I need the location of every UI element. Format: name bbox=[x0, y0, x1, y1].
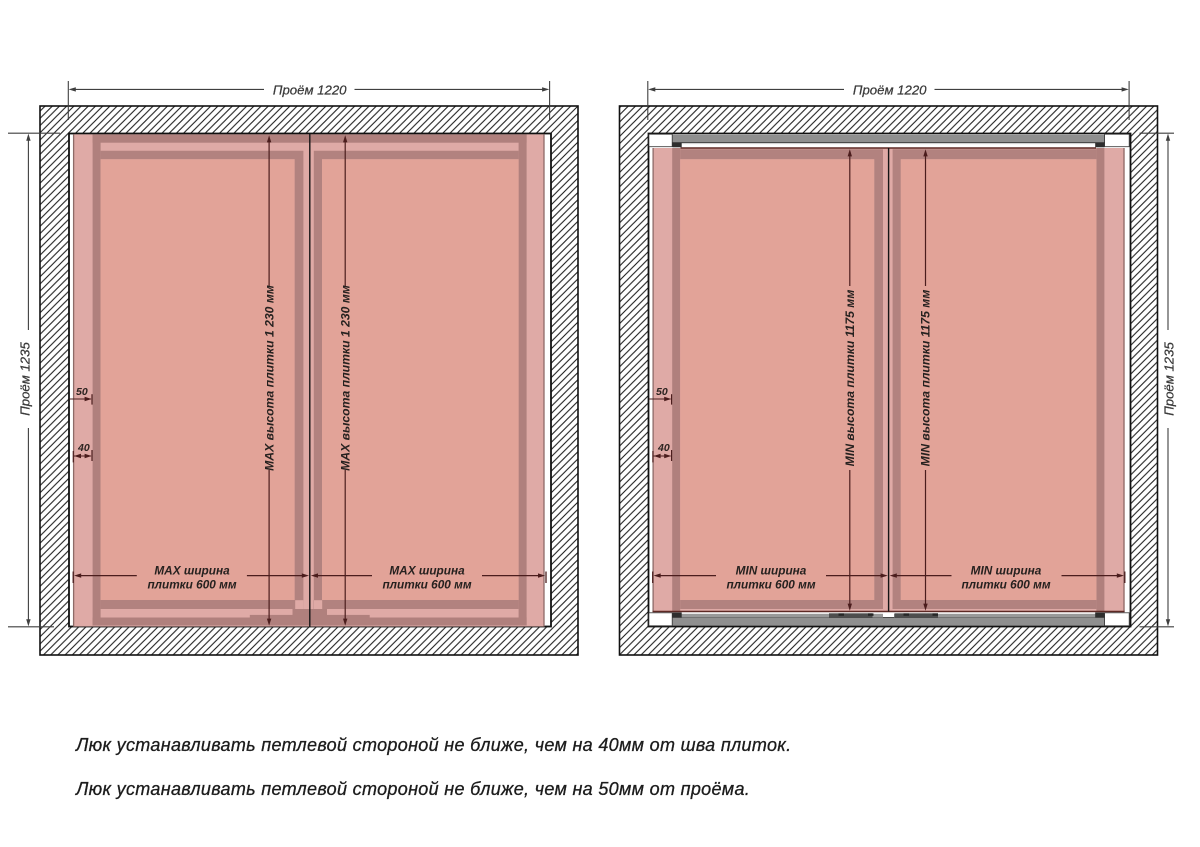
svg-text:Проём 1235: Проём 1235 bbox=[1162, 342, 1177, 416]
svg-text:MAX ширина: MAX ширина bbox=[154, 564, 230, 578]
svg-text:MAX высота плитки 1 230 мм: MAX высота плитки 1 230 мм bbox=[262, 285, 276, 471]
svg-text:Проём 1220: Проём 1220 bbox=[853, 82, 927, 97]
svg-text:MIN ширина: MIN ширина bbox=[971, 564, 1042, 578]
svg-text:Люк устанавливать петлевой сто: Люк устанавливать петлевой стороной не б… bbox=[75, 735, 791, 755]
svg-text:Проём 1220: Проём 1220 bbox=[273, 82, 347, 97]
svg-text:40: 40 bbox=[657, 442, 670, 454]
svg-text:плитки 600 мм: плитки 600 мм bbox=[961, 578, 1050, 592]
svg-text:плитки 600 мм: плитки 600 мм bbox=[382, 578, 471, 592]
svg-text:MAX высота плитки 1 230 мм: MAX высота плитки 1 230 мм bbox=[338, 285, 352, 471]
svg-text:50: 50 bbox=[656, 386, 668, 398]
svg-text:MAX ширина: MAX ширина bbox=[389, 564, 465, 578]
svg-text:MIN ширина: MIN ширина bbox=[736, 564, 807, 578]
svg-text:50: 50 bbox=[76, 386, 88, 398]
svg-text:40: 40 bbox=[77, 442, 90, 454]
svg-text:плитки 600 мм: плитки 600 мм bbox=[147, 578, 236, 592]
svg-text:MIN высота плитки 1175 мм: MIN высота плитки 1175 мм bbox=[919, 290, 933, 467]
svg-text:плитки 600 мм: плитки 600 мм bbox=[726, 578, 815, 592]
svg-text:Люк устанавливать петлевой сто: Люк устанавливать петлевой стороной не б… bbox=[75, 779, 750, 799]
svg-text:MIN высота плитки 1175 мм: MIN высота плитки 1175 мм bbox=[843, 290, 857, 467]
svg-text:Проём 1235: Проём 1235 bbox=[18, 342, 33, 416]
